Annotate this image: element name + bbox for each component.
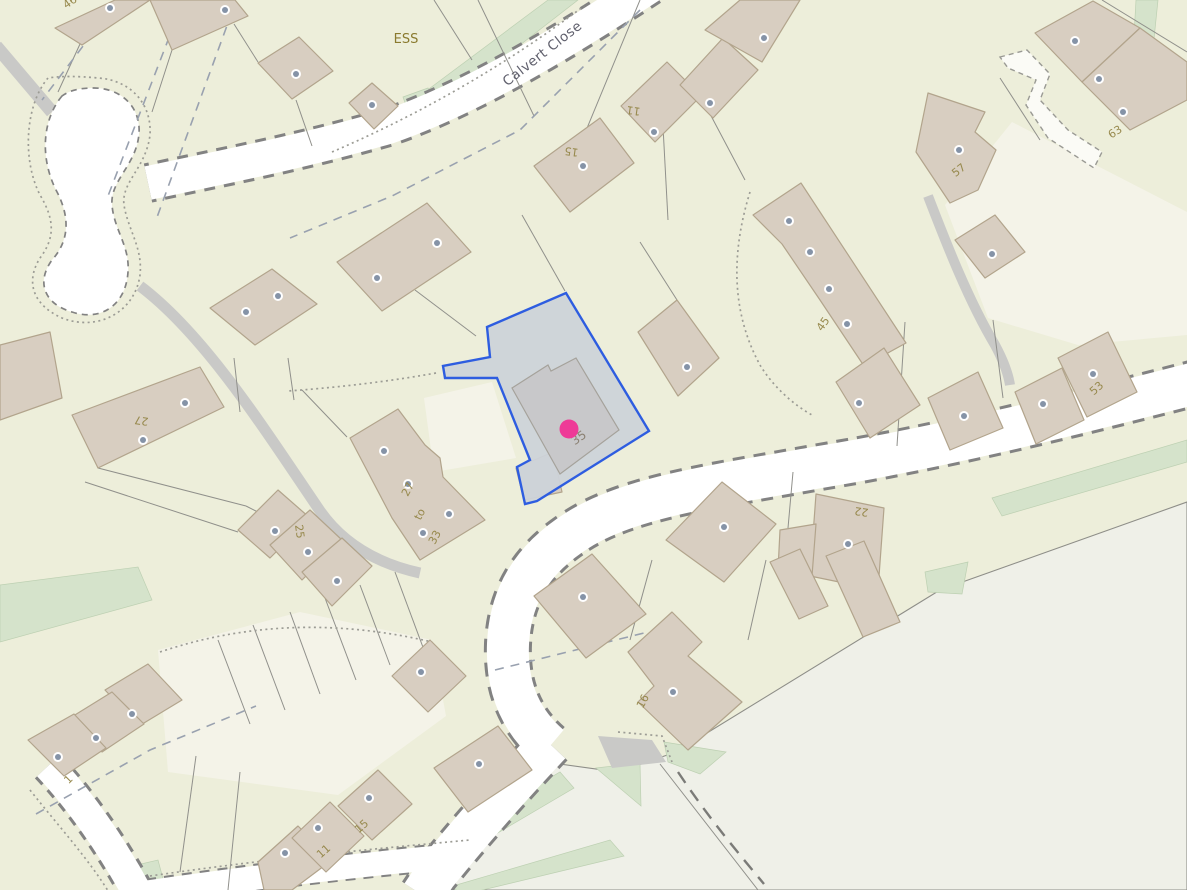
entrance-dot-icon-core xyxy=(844,321,850,327)
entrance-dot-icon-core xyxy=(418,669,424,675)
house-number-label: 15 xyxy=(564,144,580,159)
entrance-dot-icon-core xyxy=(275,293,281,299)
house-number-label: 27 xyxy=(134,413,150,428)
entrance-dot-icon-core xyxy=(305,549,311,555)
entrance-dot-icon-core xyxy=(761,35,767,41)
entrance-dot-icon-core xyxy=(684,364,690,370)
entrance-dot-icon-core xyxy=(272,528,278,534)
entrance-dot-icon-core xyxy=(420,530,426,536)
house-number-label: 11 xyxy=(626,103,642,118)
entrance-dot-icon-core xyxy=(476,761,482,767)
entrance-dot-icon-core xyxy=(807,249,813,255)
entrance-dot-icon-core xyxy=(956,147,962,153)
entrance-dot-icon-core xyxy=(845,541,851,547)
entrance-dot-icon-core xyxy=(293,71,299,77)
entrance-dot-icon-core xyxy=(989,251,995,257)
entrance-dot-icon-core xyxy=(243,309,249,315)
entrance-dot-icon-core xyxy=(786,218,792,224)
house-number-label: 22 xyxy=(854,504,870,519)
entrance-dot-icon-core xyxy=(140,437,146,443)
entrance-dot-icon-core xyxy=(434,240,440,246)
selected-location-marker-icon[interactable] xyxy=(560,420,579,439)
entrance-dot-icon-core xyxy=(1072,38,1078,44)
entrance-dot-icon-core xyxy=(721,524,727,530)
entrance-dot-icon-core xyxy=(374,275,380,281)
entrance-dot-icon-core xyxy=(182,400,188,406)
entrance-dot-icon-core xyxy=(707,100,713,106)
entrance-dot-icon-core xyxy=(282,850,288,856)
map-canvas[interactable]: ESS Calvert Close 35 4615116357455327252… xyxy=(0,0,1187,890)
entrance-dot-icon-core xyxy=(856,400,862,406)
entrance-dot-icon-core xyxy=(826,286,832,292)
entrance-dot-icon-core xyxy=(55,754,61,760)
entrance-dot-icon-core xyxy=(446,511,452,517)
map-viewport[interactable]: ESS Calvert Close 35 4615116357455327252… xyxy=(0,0,1187,890)
entrance-dot-icon-core xyxy=(1090,371,1096,377)
entrance-dot-icon-core xyxy=(366,795,372,801)
entrance-dot-icon-core xyxy=(580,594,586,600)
entrance-dot-icon-core xyxy=(1040,401,1046,407)
entrance-dot-icon-core xyxy=(107,5,113,11)
entrance-dot-icon-core xyxy=(961,413,967,419)
entrance-dot-icon-core xyxy=(222,7,228,13)
entrance-dot-icon-core xyxy=(651,129,657,135)
ess-label: ESS xyxy=(394,32,419,47)
house-number-label: 25 xyxy=(292,524,307,540)
entrance-dot-icon-core xyxy=(369,102,375,108)
entrance-dot-icon-core xyxy=(315,825,321,831)
entrance-dot-icon-core xyxy=(670,689,676,695)
entrance-dot-icon-core xyxy=(334,578,340,584)
entrance-dot-icon-core xyxy=(381,448,387,454)
entrance-dot-icon-core xyxy=(129,711,135,717)
entrance-dot-icon-core xyxy=(1120,109,1126,115)
entrance-dot-icon-core xyxy=(93,735,99,741)
entrance-dot-icon-core xyxy=(580,163,586,169)
entrance-dot-icon-core xyxy=(1096,76,1102,82)
